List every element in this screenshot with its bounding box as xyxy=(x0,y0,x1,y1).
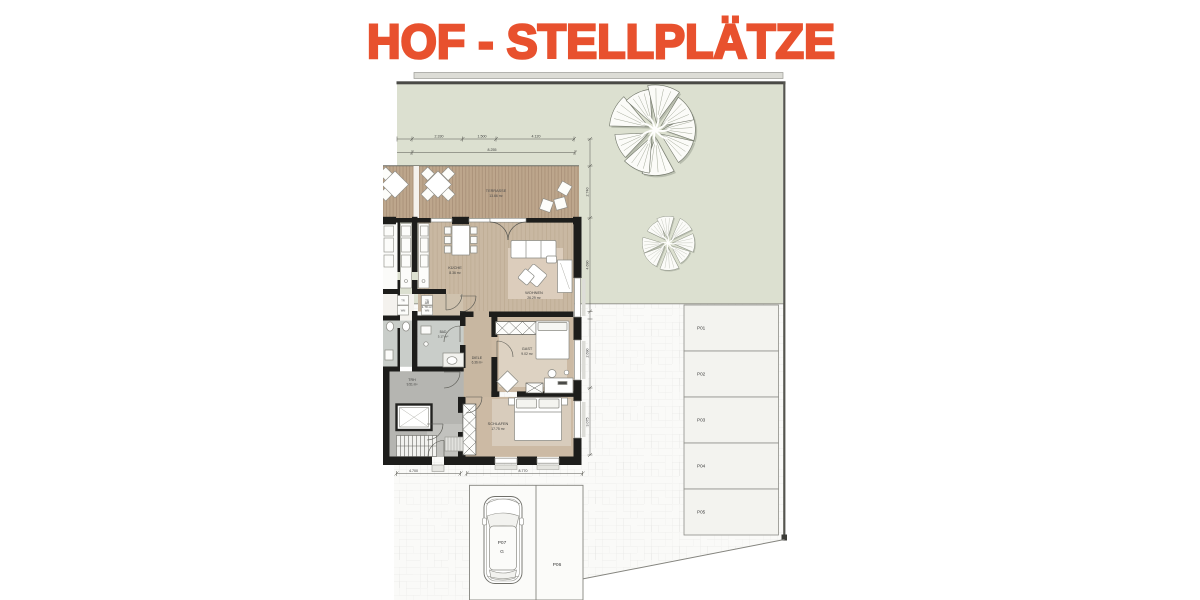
svg-text:P05: P05 xyxy=(697,510,706,515)
svg-text:9.02 m²: 9.02 m² xyxy=(521,352,533,356)
svg-text:P02: P02 xyxy=(697,372,706,377)
svg-text:P07: P07 xyxy=(498,540,507,546)
svg-text:TERRASSE: TERRASSE xyxy=(486,189,507,193)
svg-text:26.29 m²: 26.29 m² xyxy=(527,296,541,300)
svg-text:8.255: 8.255 xyxy=(488,148,497,152)
svg-text:SCHLAFEN: SCHLAFEN xyxy=(488,421,509,426)
svg-text:P01: P01 xyxy=(697,326,706,331)
svg-text:3.075: 3.075 xyxy=(586,418,590,427)
svg-text:4.120: 4.120 xyxy=(532,135,541,139)
svg-text:9.51 m²: 9.51 m² xyxy=(407,383,418,387)
svg-text:P04: P04 xyxy=(697,464,706,469)
svg-text:WM: WM xyxy=(401,309,406,313)
svg-text:KÜCHE: KÜCHE xyxy=(448,265,462,270)
svg-text:2.740: 2.740 xyxy=(586,188,590,197)
svg-text:8.770: 8.770 xyxy=(519,469,528,473)
svg-text:17.75 m²: 17.75 m² xyxy=(491,427,505,431)
svg-text:2.690: 2.690 xyxy=(586,349,590,358)
svg-text:6.36 m²: 6.36 m² xyxy=(472,361,483,365)
svg-text:TR: TR xyxy=(401,299,405,303)
svg-text:WM: WM xyxy=(425,309,430,313)
svg-text:P03: P03 xyxy=(697,418,706,423)
svg-text:4.700: 4.700 xyxy=(409,469,418,473)
svg-text:GAST: GAST xyxy=(522,346,533,351)
svg-text:1.500: 1.500 xyxy=(478,135,487,139)
svg-text:1.78 m²: 1.78 m² xyxy=(422,305,433,309)
svg-text:4.690: 4.690 xyxy=(586,261,590,270)
svg-text:5.17 m²: 5.17 m² xyxy=(438,335,449,339)
svg-text:HOF - STELLPLÄTZE: HOF - STELLPLÄTZE xyxy=(367,16,835,69)
svg-text:TRH: TRH xyxy=(408,378,416,382)
svg-text:DIELE: DIELE xyxy=(472,356,483,360)
svg-text:P06: P06 xyxy=(553,562,562,568)
svg-text:2.330: 2.330 xyxy=(435,135,444,139)
svg-text:BAD: BAD xyxy=(440,330,447,334)
svg-text:WOHNEN: WOHNEN xyxy=(525,290,543,295)
svg-text:8.36 m²: 8.36 m² xyxy=(449,271,461,275)
svg-text:13.66 m²: 13.66 m² xyxy=(489,194,503,198)
svg-text:G: G xyxy=(500,549,504,555)
